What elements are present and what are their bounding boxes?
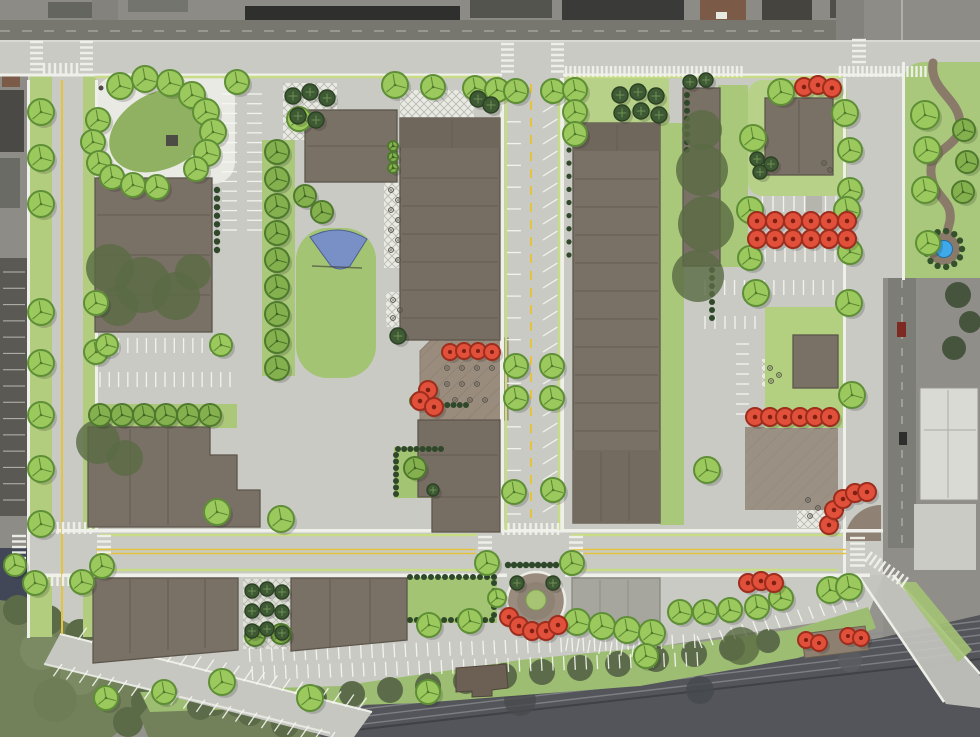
tree-center [195, 168, 198, 171]
tree-center [924, 189, 927, 192]
tree-center [756, 606, 759, 609]
tree-canopy [107, 440, 143, 476]
tree-center [706, 469, 709, 472]
tree-center [749, 257, 752, 260]
plan-layers [0, 0, 980, 737]
tree-center [321, 211, 324, 214]
hedge-shrub [566, 174, 571, 179]
parking-stripe [564, 656, 565, 670]
tree-center [469, 620, 472, 623]
hedge-shrub [214, 187, 220, 193]
vegetation-mass [339, 681, 365, 707]
parking-stripe [427, 642, 428, 656]
tree-center [552, 90, 555, 93]
hedge-shrub [927, 258, 933, 264]
hedge-shrub [393, 472, 399, 478]
tree-center [963, 129, 966, 132]
tree-center [768, 415, 773, 420]
parking-stripe [572, 638, 573, 652]
tree-center [772, 581, 777, 586]
tree-center [601, 625, 604, 628]
tree-center [791, 219, 796, 224]
tree-center [551, 397, 554, 400]
cafe-table-center [461, 367, 463, 369]
tree-center [476, 349, 480, 353]
cafe-table-center [390, 249, 392, 251]
cafe-table-center [446, 383, 448, 385]
hedge-shrub [214, 213, 220, 219]
tree-center [220, 344, 223, 347]
parking-stripe [330, 664, 331, 678]
tree-center [827, 523, 832, 528]
cafe-table-center [829, 169, 831, 171]
tree-center [165, 414, 168, 417]
hedge-shrub [566, 161, 571, 166]
hedge-shrub [420, 446, 426, 452]
tree-center [755, 237, 760, 242]
tree-center [394, 84, 397, 87]
tree-center [206, 152, 209, 155]
tree-center [14, 564, 17, 567]
tree-canopy [672, 250, 724, 302]
tree-center [132, 184, 135, 187]
tree-center [92, 141, 95, 144]
building [291, 578, 407, 651]
tree-center [432, 86, 435, 89]
hedge-shrub [435, 574, 441, 580]
parking-stripe [338, 645, 339, 659]
hedge-shrub [413, 446, 419, 452]
aerial-roof [562, 0, 684, 20]
tree-canopy [722, 627, 760, 665]
hedge-shrub [448, 617, 454, 623]
aerial-car [716, 12, 727, 19]
hedge-shrub [684, 100, 690, 106]
hedge-shrub [407, 617, 413, 623]
tree-center [432, 405, 437, 410]
tree-center [392, 167, 395, 170]
tree-center [551, 365, 554, 368]
tree-center [571, 562, 574, 565]
aerial-car [899, 432, 907, 445]
parking-stripe [283, 647, 284, 661]
tree-center [780, 91, 783, 94]
cafe-table-center [476, 367, 478, 369]
tree-center [556, 623, 561, 628]
hedge-shrub [470, 574, 476, 580]
hedge-shrub [951, 261, 957, 267]
tree-center [845, 237, 850, 242]
tree-center [40, 523, 43, 526]
tree-center [216, 511, 219, 514]
hedge-shrub [934, 263, 940, 269]
tree-center [746, 581, 751, 586]
tree-center [832, 508, 837, 513]
tree-center [759, 579, 764, 584]
cafe-table-center [446, 367, 448, 369]
tree-center [276, 205, 279, 208]
tree-center [121, 414, 124, 417]
building [793, 335, 838, 388]
hedge-shrub [709, 307, 715, 313]
cafe-table-center [809, 515, 811, 517]
hedge-shrub [393, 459, 399, 465]
parking-stripe [519, 658, 520, 672]
hedge-shrub [457, 402, 463, 408]
hedge-shrub [393, 491, 399, 497]
cafe-table-center [817, 507, 819, 509]
hedge-shrub [547, 562, 553, 568]
tree-center [846, 634, 850, 638]
tree-center [212, 131, 215, 134]
hedge-shrub [393, 485, 399, 491]
tree-center [753, 415, 758, 420]
hedge-shrub [393, 465, 399, 471]
panel [400, 118, 500, 148]
tree-center [828, 415, 833, 420]
hedge-shrub [426, 446, 432, 452]
tree-center [276, 340, 279, 343]
cafe-table-center [454, 399, 456, 401]
tree-center [679, 611, 682, 614]
tree-center [830, 86, 835, 91]
parking-stripe [438, 642, 439, 656]
tree-center [191, 94, 194, 97]
hedge-shrub [214, 221, 220, 227]
tree-center [276, 367, 279, 370]
tree-center [645, 655, 648, 658]
tree-center [97, 119, 100, 122]
tree-center [427, 691, 430, 694]
vegetation-mass [377, 677, 403, 703]
tree-center [927, 242, 930, 245]
aerial-roof [128, 0, 188, 12]
tree-center [40, 362, 43, 365]
parking-stripe [697, 652, 698, 666]
hedge-shrub [709, 315, 715, 321]
tree-center [99, 414, 102, 417]
parking-stripe [686, 652, 687, 666]
tree-center [752, 137, 755, 140]
gazebo [166, 135, 178, 146]
tree-center [859, 636, 863, 640]
tree-center [428, 624, 431, 627]
cafe-table-center [390, 229, 392, 231]
tree-center [40, 203, 43, 206]
tree-center [966, 161, 969, 164]
hedge-shrub [442, 574, 448, 580]
cafe-table-center [491, 367, 493, 369]
parking-stripe [386, 662, 387, 676]
cafe-table-center [397, 259, 399, 261]
tree-center [34, 582, 37, 585]
tree-center [144, 78, 147, 81]
tree-center [848, 586, 851, 589]
tree-center [426, 388, 431, 393]
aerial-car [897, 322, 906, 337]
cafe-table-center [807, 499, 809, 501]
hedge-shrub [449, 574, 455, 580]
tree-center [169, 82, 172, 85]
hedge-shrub [491, 580, 497, 586]
tree-center [515, 397, 518, 400]
panel [745, 427, 838, 510]
hedge-shrub [541, 562, 547, 568]
crosswalk [44, 63, 77, 74]
panel [902, 62, 905, 280]
hedge-shrub [456, 574, 462, 580]
vegetation-mass [567, 655, 593, 681]
tree-center [544, 629, 549, 634]
hedge-shrub [943, 264, 949, 270]
hedge-shrub [957, 254, 963, 260]
tree-center [496, 89, 499, 92]
tree-center [626, 629, 629, 632]
parking-stripe [341, 663, 342, 677]
tree-center [119, 85, 122, 88]
parking-stripe [408, 661, 409, 675]
tree-center [187, 414, 190, 417]
aerial-roof [914, 504, 976, 570]
parking-stripe [397, 661, 398, 675]
parking-stripe [274, 665, 275, 679]
parking-stripe [516, 640, 517, 654]
hedge-shrub [214, 204, 220, 210]
parking-stripe [675, 653, 676, 667]
tree-center [280, 518, 283, 521]
tree-center [276, 286, 279, 289]
tree-center [844, 112, 847, 115]
tree-center [507, 615, 512, 620]
tree-center [392, 156, 395, 159]
parking-stripe [260, 648, 261, 662]
tree-center [809, 219, 814, 224]
cafe-table-center [461, 383, 463, 385]
tree-center [40, 414, 43, 417]
tree-center [816, 83, 821, 88]
tree-center [515, 90, 518, 93]
tree-center [81, 581, 84, 584]
parking-stripe [372, 644, 373, 658]
cafe-table-center [823, 162, 825, 164]
hedge-shrub [709, 299, 715, 305]
tree-center [849, 251, 852, 254]
tree-center [845, 219, 850, 224]
tree-center [98, 162, 101, 165]
tree-center [552, 489, 555, 492]
tree-center [448, 350, 452, 354]
vegetation-mass [959, 311, 980, 333]
cafe-table-center [778, 374, 780, 376]
tree-center [517, 624, 522, 629]
hedge-shrub [407, 446, 413, 452]
parking-stripe [452, 660, 453, 674]
tree-center [304, 195, 307, 198]
cafe-table-center [397, 219, 399, 221]
vegetation-mass [686, 676, 714, 704]
tree-center [729, 609, 732, 612]
tree-center [827, 219, 832, 224]
parking-stripe [597, 655, 598, 669]
parking-stripe [352, 663, 353, 677]
parking-stripe [619, 654, 620, 668]
parking-stripe [472, 641, 473, 655]
parking-stripe [483, 641, 484, 655]
cafe-table-center [397, 239, 399, 241]
parking-stripe [694, 634, 695, 648]
tree-center [513, 491, 516, 494]
parking-stripe [405, 643, 406, 657]
tree-center [849, 149, 852, 152]
parking-stripe [285, 665, 286, 679]
hedge-shrub [566, 200, 571, 205]
hedge-shrub [214, 230, 220, 236]
tree-center [849, 189, 852, 192]
tree-center [804, 638, 808, 642]
cafe-table-center [469, 399, 471, 401]
panel [573, 450, 660, 523]
tree-center [651, 632, 654, 635]
tree-canopy [676, 144, 728, 196]
parking-stripe [374, 662, 375, 676]
hedge-shrub [393, 452, 399, 458]
tree-center [846, 209, 849, 212]
cafe-table-center [769, 367, 771, 369]
hedge-shrub [943, 228, 949, 234]
parking-stripe [672, 635, 673, 649]
tree-center [848, 302, 851, 305]
tree-center [827, 237, 832, 242]
tree-center [924, 114, 927, 117]
tree-center [530, 629, 535, 634]
tree-center [817, 641, 821, 645]
hedge-shrub [463, 402, 469, 408]
parking-stripe [419, 661, 420, 675]
parking-stripe [383, 644, 384, 658]
tree-center [576, 621, 579, 624]
aerial-parking-lot [0, 258, 29, 516]
aerial-roof [0, 90, 24, 152]
vegetation-mass [33, 678, 77, 722]
plaza-lawn-center [526, 590, 546, 610]
hedge-shrub [463, 574, 469, 580]
tree-center [490, 350, 494, 354]
hedge-shrub [535, 562, 541, 568]
tree-center [209, 414, 212, 417]
parking-stripe [664, 653, 665, 667]
parking-stripe [561, 638, 562, 652]
parking-stripe [552, 657, 553, 671]
tree-canopy [175, 254, 211, 290]
parking-stripe [416, 643, 417, 657]
tree-center [462, 349, 466, 353]
hedge-shrub [511, 562, 517, 568]
tree-center [783, 415, 788, 420]
tree-center [392, 145, 395, 148]
aerial-roof [470, 0, 552, 18]
hedge-shrub [959, 246, 965, 252]
cafe-table-center [770, 380, 772, 382]
hedge-shrub [401, 446, 407, 452]
parking-stripe [583, 638, 584, 652]
aerial-roof [920, 388, 978, 500]
hedge-shrub [566, 226, 571, 231]
panel [560, 78, 564, 532]
parking-stripe [594, 637, 595, 651]
tree-center [926, 149, 929, 152]
tree-center [309, 697, 312, 700]
cafe-table-center [484, 399, 486, 401]
cafe-table-center [390, 209, 392, 211]
tree-center [574, 133, 577, 136]
hedge-shrub [214, 238, 220, 244]
tree-center [515, 365, 518, 368]
cafe-table-center [399, 309, 401, 311]
tree-center [474, 87, 477, 90]
tree-center [276, 178, 279, 181]
tree-center [773, 219, 778, 224]
hedge-shrub [566, 239, 571, 244]
parking-stripe [249, 648, 250, 662]
hedge-shrub [951, 231, 957, 237]
tree-center [755, 292, 758, 295]
hedge-shrub [432, 446, 438, 452]
tree-center [276, 151, 279, 154]
vegetation-mass [945, 282, 971, 308]
tree-center [95, 302, 98, 305]
vegetation-mass [942, 336, 966, 360]
aerial-roof [762, 0, 812, 22]
tree-center [236, 81, 239, 84]
parking-stripe [530, 657, 531, 671]
parking-stripe [272, 647, 273, 661]
hedge-shrub [214, 247, 220, 253]
hedge-shrub [421, 574, 427, 580]
parking-stripe [461, 641, 462, 655]
tree-center [496, 597, 499, 600]
tree-center [574, 111, 577, 114]
tree-center [962, 191, 965, 194]
tree-center [276, 313, 279, 316]
hedge-shrub [414, 574, 420, 580]
panel [565, 574, 870, 578]
tree-center [40, 468, 43, 471]
tree-center [749, 209, 752, 212]
building [400, 118, 500, 340]
hedge-shrub [407, 574, 413, 580]
tree-center [221, 681, 224, 684]
building [93, 578, 238, 663]
aerial-road [836, 0, 866, 40]
vegetation-mass [113, 707, 143, 737]
hedge-shrub [438, 446, 444, 452]
tree-center [40, 311, 43, 314]
cafe-table-center [390, 189, 392, 191]
vegetation-mass [681, 641, 707, 667]
hedge-shrub [428, 574, 434, 580]
tree-center [105, 697, 108, 700]
tree-center [865, 490, 870, 495]
tree-center [276, 232, 279, 235]
parking-stripe [575, 656, 576, 670]
tree-center [813, 415, 818, 420]
tree-center [841, 497, 846, 502]
hedge-shrub [684, 92, 690, 98]
parking-stripe [430, 660, 431, 674]
parking-stripe [505, 640, 506, 654]
parking-stripe [319, 664, 320, 678]
hedge-shrub [517, 562, 523, 568]
